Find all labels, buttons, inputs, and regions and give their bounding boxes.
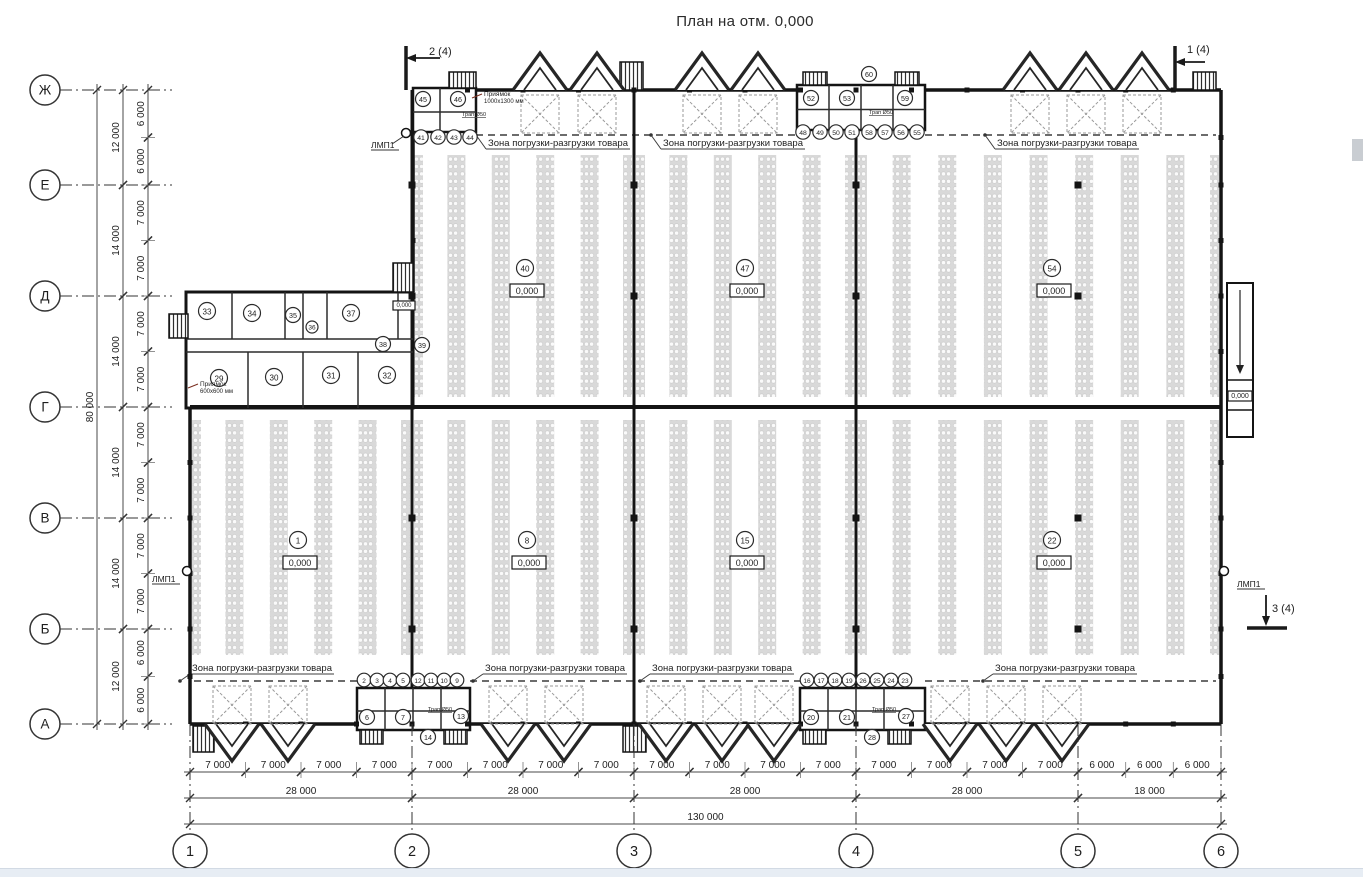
wall-pilaster [411,183,416,188]
room-number-24: 24 [887,678,895,685]
wall-pilaster [188,674,193,679]
rack-row [984,155,1002,397]
room-number-14: 14 [424,734,432,742]
wall-pilaster [1219,183,1224,188]
rack-row [636,155,645,397]
floor-plan-page: План на отм. 0,000 Зона погрузки-разгруз… [0,0,1363,877]
rack-row [1121,420,1139,655]
wall-pilaster [1219,460,1224,465]
dim-value: 7 000 [136,255,147,280]
axis-label-Б: Б [41,622,50,637]
wall-pilaster [798,88,803,93]
wall-pilaster [188,460,193,465]
rack-row [536,155,554,397]
dim-value: 7 000 [982,760,1007,771]
column-marker [853,515,860,522]
wall-pilaster [965,88,970,93]
room-number-57: 57 [881,130,889,137]
dim-value: 14 000 [111,336,122,367]
dim-value: 28 000 [508,786,539,797]
dim-value: 7 000 [316,760,341,771]
room-number-28: 28 [868,734,876,742]
room-number-11: 11 [428,678,435,685]
wall-pilaster [354,722,359,727]
wall-pilaster [465,88,470,93]
room-number-18: 18 [831,678,839,685]
stair-block [803,72,827,85]
room-number-4: 4 [388,678,392,685]
wall-pilaster [1219,238,1224,243]
loading-zone-label: Зона погрузки-разгрузки товара [995,663,1136,674]
dock-shelter-icon [1059,53,1113,90]
loading-zone-label: Зона погрузки-разгрузки товара [192,663,333,674]
rack-row [492,420,510,655]
room-number-20: 20 [807,714,815,722]
axis-label-6: 6 [1217,844,1225,860]
zone-leader [640,674,650,681]
room-number-8: 8 [525,537,530,546]
exit-door-bump [1220,567,1229,576]
scan-artifact [1352,139,1363,161]
zone-leader [473,674,483,681]
wall-pilaster [188,627,193,632]
rack-row [314,420,332,655]
column-marker [1075,293,1082,300]
dim-value: 6 000 [136,148,147,173]
dock-shelter-icon [261,724,315,761]
elevation-value: 0,000 [1043,286,1066,296]
section-mark-label: 1 (4) [1187,44,1210,56]
pit-label: Приямок [200,381,227,388]
dock-shelter-icon [1035,724,1089,761]
room-number-30: 30 [270,374,279,383]
rack-row [536,420,554,655]
room-number-49: 49 [816,130,824,137]
dim-value: 6 000 [1185,760,1210,771]
rack-row [581,155,599,397]
column-marker [853,293,860,300]
axis-label-4: 4 [852,844,860,860]
rack-row [803,155,821,397]
elevation-value: 0,000 [1043,558,1066,568]
rack-row [893,420,911,655]
zone-leader [985,135,995,149]
dock-shelter-icon [979,724,1033,761]
axis-label-Д: Д [40,289,49,304]
dim-value: 6 000 [136,687,147,712]
axis-label-2: 2 [408,844,416,860]
rack-row [845,155,854,397]
dock-shelter-icon [570,53,624,90]
rack-row [414,420,423,655]
wall-pilaster [1219,674,1224,679]
room-number-58: 58 [865,130,873,137]
room-number-26: 26 [859,678,867,685]
dim-value: 7 000 [136,533,147,558]
room-number-7: 7 [401,714,405,722]
room-number-47: 47 [741,265,750,274]
room-number-54: 54 [1048,265,1057,274]
pit-label: 600х600 мм [200,389,233,395]
rack-row [1210,155,1219,397]
stair-block [1193,72,1216,90]
rack-row [758,420,776,655]
rack-row [447,155,465,397]
rack-row [858,155,867,397]
room-number-32: 32 [383,372,392,381]
room-number-37: 37 [347,310,356,319]
dock-shelter-icon [1115,53,1169,90]
axis-label-Е: Е [40,178,49,193]
dim-value: 7 000 [136,477,147,502]
room-number-3: 3 [375,678,379,685]
dock-shelter-icon [481,724,535,761]
dim-value: 6 000 [136,101,147,126]
stair-block [620,62,643,90]
axis-label-Г: Г [41,400,49,415]
room-number-45: 45 [419,96,427,104]
room-number-56: 56 [897,130,905,137]
exit-door-bump [402,129,411,138]
elevation-value: 0,000 [736,558,759,568]
dock-shelter-icon [537,724,591,761]
loading-zone-label: Зона погрузки-разгрузки товара [997,138,1138,149]
wall-pilaster [1219,349,1224,354]
room-number-43: 43 [450,135,458,142]
dim-value: 7 000 [427,760,452,771]
dim-value: 7 000 [816,760,841,771]
dim-value: 14 000 [111,447,122,478]
room-number-50: 50 [832,130,840,137]
room-number-34: 34 [248,310,257,319]
zone-leader [983,674,993,681]
wall-pilaster [188,516,193,521]
rack-row [192,420,201,655]
column-marker [631,293,638,300]
axis-label-1: 1 [186,844,194,860]
room-number-39: 39 [418,342,426,350]
dim-value: 7 000 [760,760,785,771]
section-mark-arrowhead [1262,616,1270,626]
rack-row [492,155,510,397]
section-mark-label: 3 (4) [1272,603,1295,615]
room-number-6: 6 [365,714,369,722]
rack-row [636,420,645,655]
room-number-17: 17 [817,678,825,685]
column-marker [1075,515,1082,522]
dim-value: 7 000 [705,760,730,771]
rack-row [1075,155,1093,397]
column-marker [1075,626,1082,633]
dim-value: 18 000 [1134,786,1165,797]
dim-value: 130 000 [687,812,724,823]
dim-value: 7 000 [261,760,286,771]
loading-zone-label: Зона погрузки-разгрузки товара [485,663,626,674]
drain-label: Трап Ø50 [872,707,896,713]
dim-value: 28 000 [730,786,761,797]
axis-label-Ж: Ж [39,83,52,98]
dim-value: 7 000 [927,760,952,771]
rack-row [714,155,732,397]
rack-row [447,420,465,655]
stair-block [360,730,383,744]
room-number-44: 44 [466,135,474,142]
rack-row [1166,420,1184,655]
dim-value: 7 000 [649,760,674,771]
axis-label-А: А [40,717,49,732]
stair-annex-northeast [393,263,413,292]
rack-row [401,420,410,655]
dim-value: 7 000 [372,760,397,771]
wall-pilaster [1123,722,1128,727]
dim-value: 12 000 [111,122,122,153]
room-number-16: 16 [803,678,811,685]
exit-door-bump [183,567,192,576]
room-number-23: 23 [901,678,909,685]
dock-shelter-icon [747,724,801,761]
room-number-53: 53 [843,95,851,103]
rack-row [1030,155,1048,397]
floor-plan-svg: Зона погрузки-разгрузки товараЗона погру… [0,0,1363,877]
elevation-value: 0,000 [518,558,541,568]
page-bottom-strip [0,868,1363,877]
stair-exit-label: ЛМП1 [371,140,395,150]
loading-zone-label: Зона погрузки-разгрузки товара [652,663,793,674]
room-number-40: 40 [521,265,530,274]
wall-pilaster [632,88,637,93]
room-number-19: 19 [845,678,853,685]
axis-label-3: 3 [630,844,638,860]
room-number-2: 2 [362,678,366,685]
rack-row [581,420,599,655]
section-mark-label: 2 (4) [429,46,452,58]
room-number-31: 31 [327,372,336,381]
column-marker [631,626,638,633]
room-number-1: 1 [296,537,301,546]
wall-pilaster [1171,722,1176,727]
room-number-59: 59 [901,95,909,103]
dock-shelter-icon [1003,53,1057,90]
wall-pilaster [1219,294,1224,299]
pit-label: Приямок [484,91,511,98]
rack-row [938,155,956,397]
room-number-55: 55 [913,130,921,137]
rack-row [669,155,687,397]
dock-shelter-icon [923,724,977,761]
dim-value: 7 000 [136,366,147,391]
rack-row [359,420,377,655]
rack-row [803,420,821,655]
dock-shelter-icon [731,53,785,90]
column-marker [853,182,860,189]
rack-row [858,420,867,655]
rack-row [845,420,854,655]
column-marker [409,626,416,633]
stair-annex-west [169,314,188,338]
rack-row [984,420,1002,655]
dock-shelter-icon [675,53,729,90]
rack-row [270,420,288,655]
column-marker [409,293,416,300]
room-number-21: 21 [843,714,851,722]
room-number-60: 60 [865,71,873,79]
dim-value: 7 000 [136,422,147,447]
dim-value: 6 000 [1137,760,1162,771]
dock-shelter-icon [513,53,567,90]
stair-block [449,72,476,88]
dim-value: 28 000 [952,786,983,797]
room-number-42: 42 [434,135,442,142]
dim-value: 7 000 [1038,760,1063,771]
stair-exit-label: ЛМП1 [152,574,176,584]
room-number-41: 41 [417,135,425,142]
rack-row [1121,155,1139,397]
dim-value: 7 000 [205,760,230,771]
drain-label: Трап Ø50 [428,707,452,713]
rack-row [623,420,632,655]
dim-value: 7 000 [136,588,147,613]
dim-value: 7 000 [136,200,147,225]
room-number-25: 25 [873,678,881,685]
rack-row [1075,420,1093,655]
dim-value: 14 000 [111,558,122,589]
stair-exit-label: ЛМП1 [1237,579,1261,589]
stair-block [895,72,919,85]
room-number-27: 27 [902,713,910,721]
room-number-9: 9 [455,678,459,685]
wall-pilaster [1219,135,1224,140]
room-number-51: 51 [848,130,856,137]
dock-shelter-icon [695,724,749,761]
dimensions-layer: 7 0007 0007 0007 0007 0007 0007 0007 000… [85,84,1227,828]
dim-value: 6 000 [136,640,147,665]
drain-label: Трап Ø50 [462,112,486,118]
rack-row [893,155,911,397]
rack-row [414,155,423,397]
elevation-value: 0,000 [516,286,539,296]
rack-row [669,420,687,655]
room-number-12: 12 [414,678,422,685]
wall-pilaster [1219,516,1224,521]
dim-value: 6 000 [1089,760,1114,771]
rack-row [938,420,956,655]
wall-pilaster [1219,627,1224,632]
dim-value: 14 000 [111,225,122,256]
elevation-value: 0,000 [1231,393,1249,400]
wall-pilaster [854,88,859,93]
elevation-value: 0,000 [289,558,312,568]
loading-zone-label: Зона погрузки-разгрузки товара [663,138,804,149]
rack-row [623,155,632,397]
rack-row [714,420,732,655]
room-number-10: 10 [440,678,448,685]
dim-value: 7 000 [594,760,619,771]
room-number-52: 52 [807,95,815,103]
rack-row [225,420,243,655]
loading-zone-label: Зона погрузки-разгрузки товара [488,138,629,149]
axis-label-В: В [40,511,49,526]
pit-leader [188,384,198,388]
elevation-value: 0,000 [396,303,412,309]
stair-block [803,730,826,744]
column-marker [631,182,638,189]
room-number-35: 35 [289,312,297,320]
dim-value: 7 000 [538,760,563,771]
room-number-38: 38 [379,341,387,349]
room-number-5: 5 [401,678,405,685]
room-number-13: 13 [457,713,465,721]
dock-shelter-icon [639,724,693,761]
room-number-46: 46 [454,96,462,104]
column-marker [409,515,416,522]
pit-label: 1000х1300 мм [484,99,524,105]
rack-row [1166,155,1184,397]
rack-row [758,155,776,397]
dim-value: 12 000 [111,661,122,692]
dim-value: 7 000 [136,311,147,336]
dim-value: 28 000 [286,786,317,797]
rack-row [1210,420,1219,655]
room-number-36: 36 [308,325,316,332]
zone-leader [651,135,661,149]
dim-value: 7 000 [483,760,508,771]
drain-label: Трап Ø50 [869,110,893,116]
column-marker [853,626,860,633]
dim-value: 7 000 [871,760,896,771]
column-marker [1075,182,1082,189]
wall-pilaster [411,238,416,243]
column-marker [631,515,638,522]
stair-block [888,730,911,744]
elevation-value: 0,000 [736,286,759,296]
room-number-15: 15 [741,537,750,546]
room-number-48: 48 [799,130,807,137]
stair-block [444,730,467,744]
room-number-22: 22 [1048,537,1057,546]
axis-label-5: 5 [1074,844,1082,860]
room-number-33: 33 [203,308,212,317]
